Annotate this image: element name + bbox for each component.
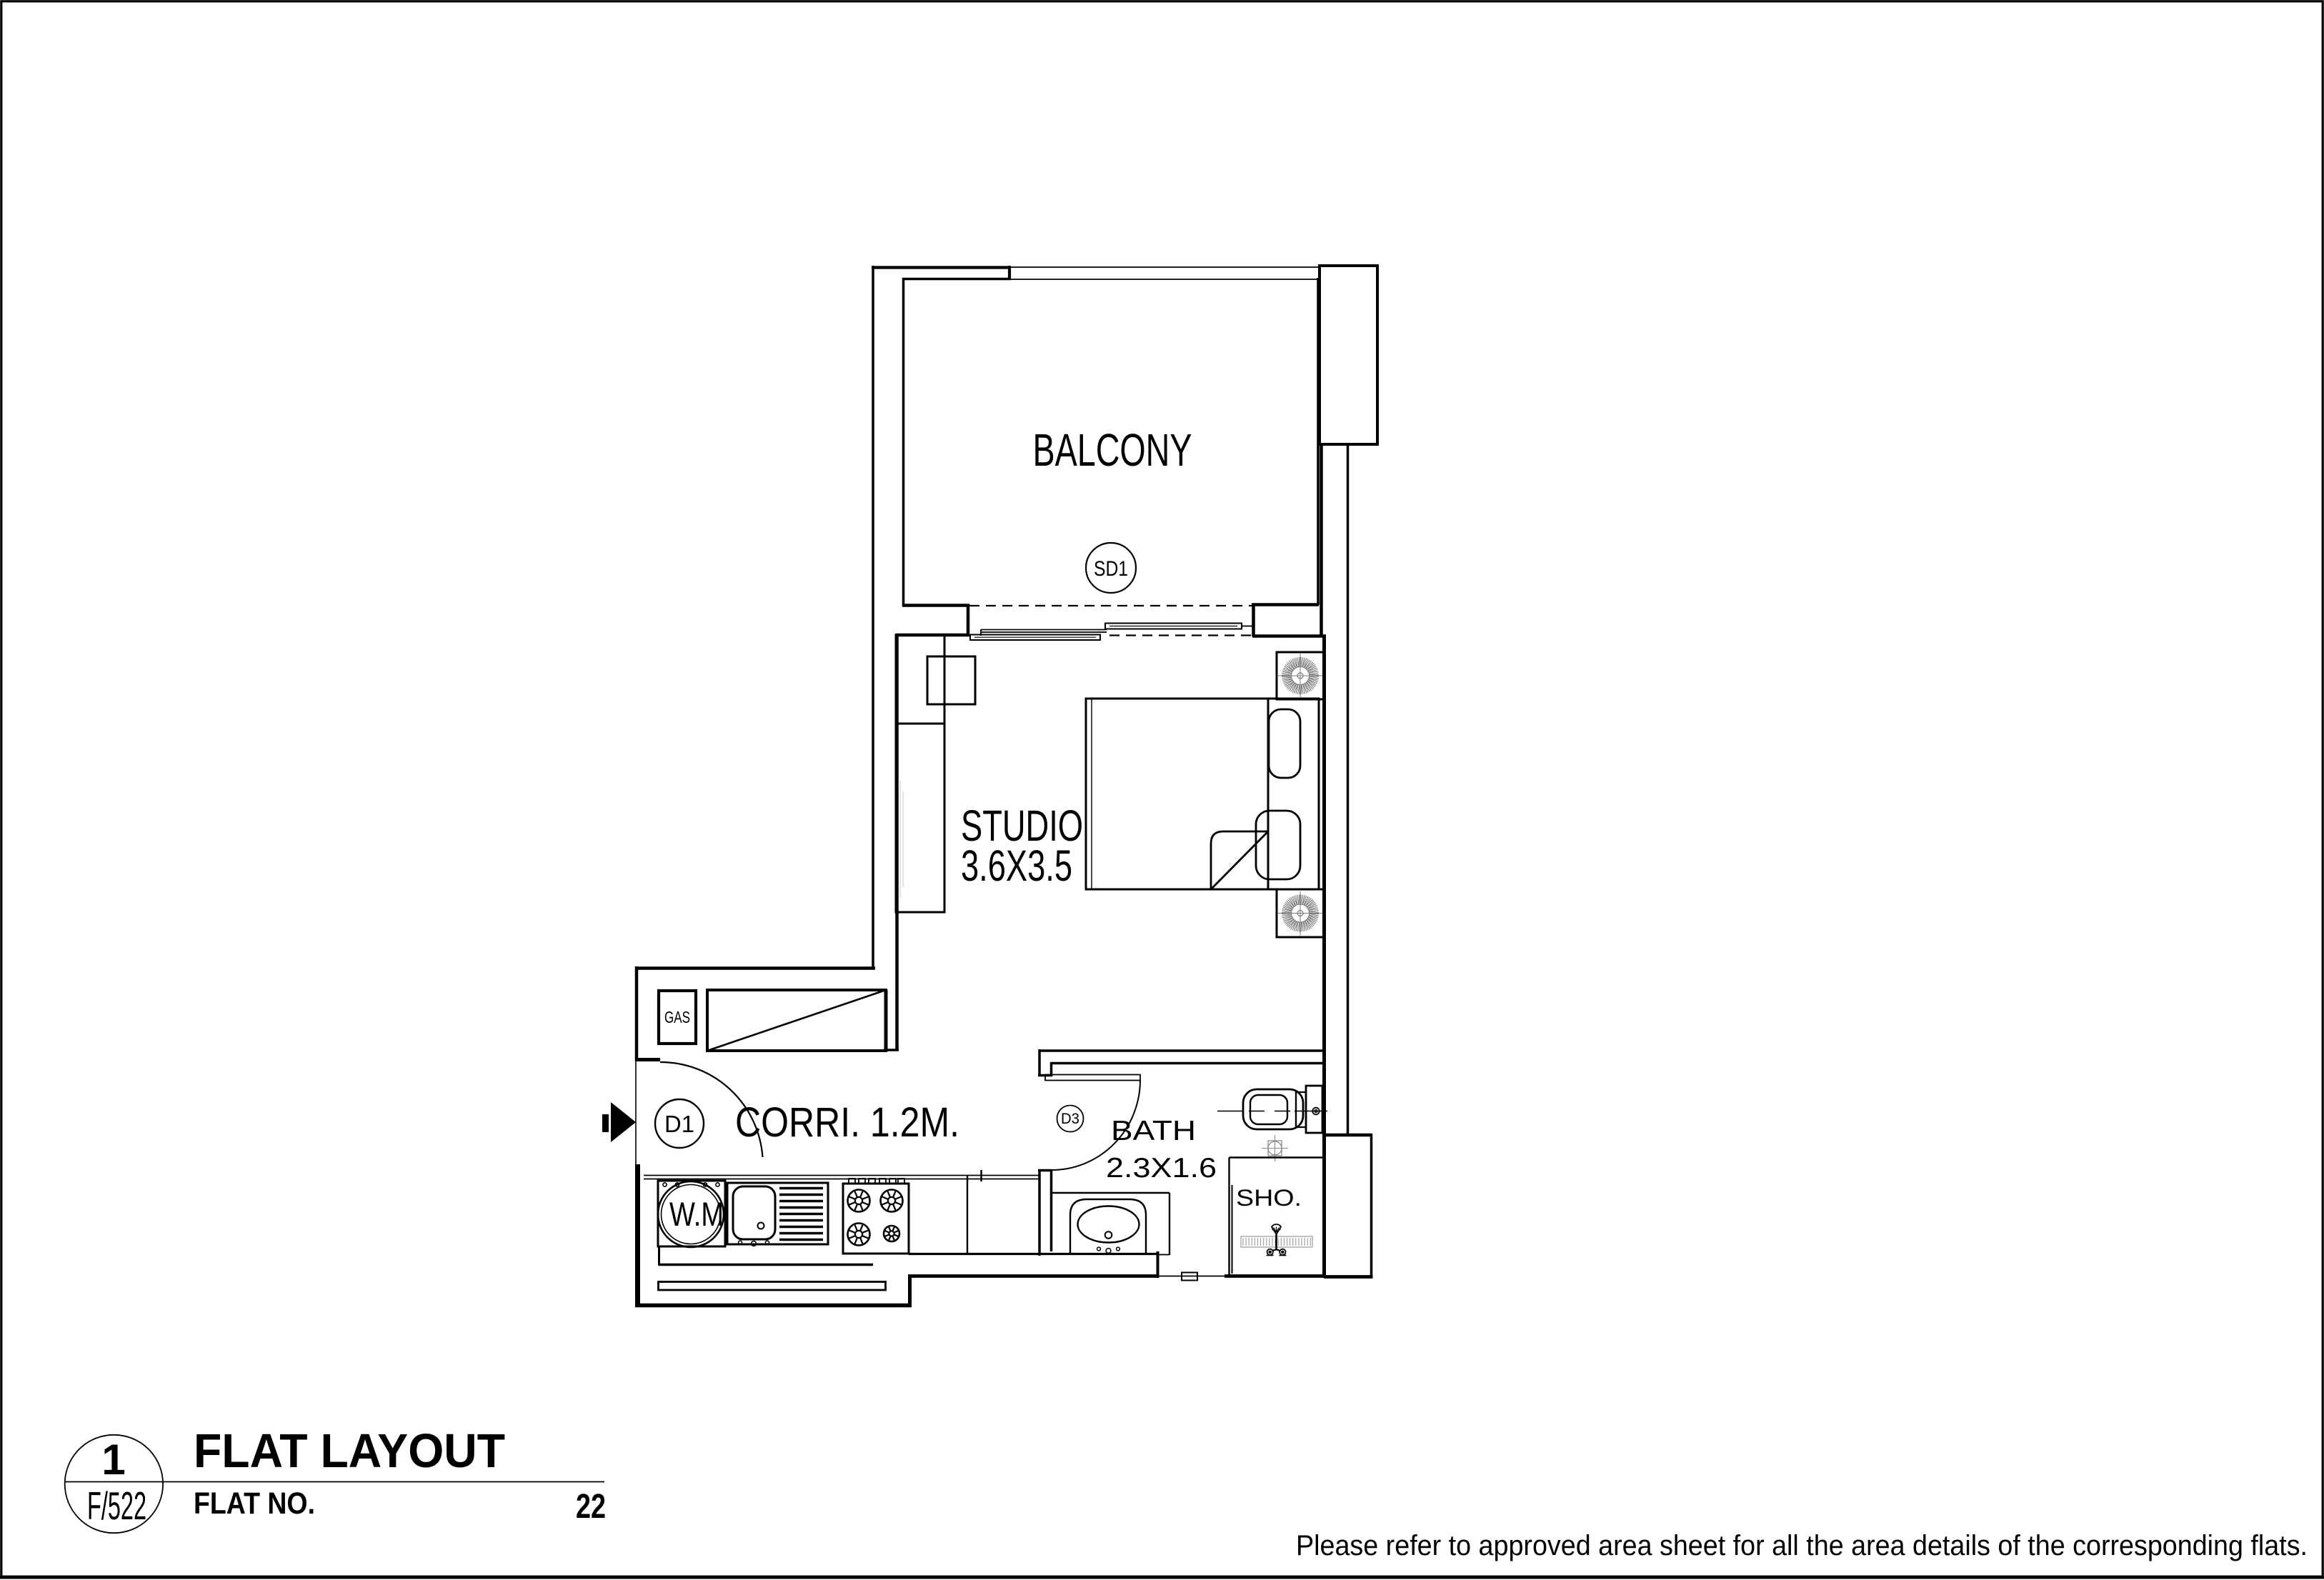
svg-text:22: 22: [576, 1488, 606, 1526]
svg-text:CORRI. 1.2M.: CORRI. 1.2M.: [735, 1099, 959, 1146]
svg-text:BATH: BATH: [1111, 1116, 1196, 1146]
svg-text:D3: D3: [1061, 1111, 1079, 1127]
svg-text:3.6X3.5: 3.6X3.5: [961, 841, 1072, 890]
svg-text:FLAT LAYOUT: FLAT LAYOUT: [194, 1424, 505, 1478]
svg-text:SHO.: SHO.: [1236, 1185, 1302, 1211]
svg-text:Please refer to approved area: Please refer to approved area sheet for …: [1296, 1530, 2308, 1561]
svg-text:GAS: GAS: [664, 1008, 690, 1026]
svg-text:2.3X1.6: 2.3X1.6: [1106, 1153, 1217, 1184]
svg-text:D1: D1: [664, 1111, 694, 1137]
svg-text:BALCONY: BALCONY: [1033, 424, 1192, 476]
svg-text:1: 1: [101, 1436, 125, 1484]
svg-text:F/522: F/522: [87, 1484, 146, 1528]
svg-text:W.M: W.M: [669, 1195, 724, 1233]
svg-text:SD1: SD1: [1094, 557, 1128, 581]
svg-text:FLAT NO.: FLAT NO.: [194, 1486, 315, 1521]
